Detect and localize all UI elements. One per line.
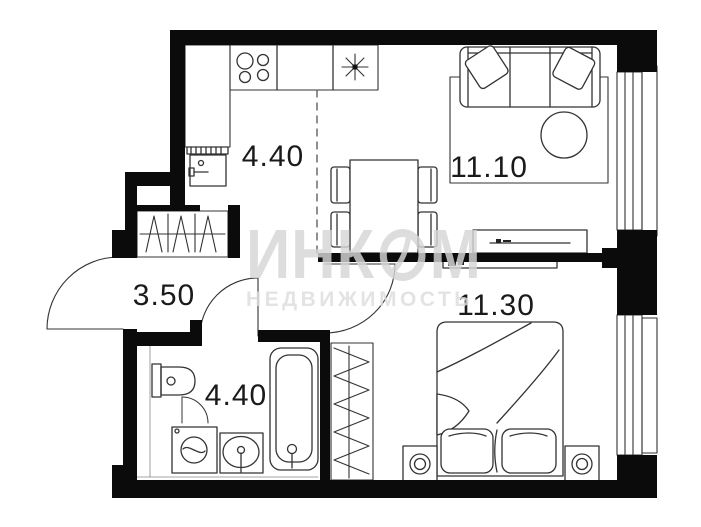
bedroom-door-arc	[325, 264, 395, 333]
bed	[437, 322, 563, 476]
wardrobe	[137, 211, 228, 257]
wall-window-mid	[617, 230, 657, 315]
wall-pier	[190, 320, 202, 334]
chair	[418, 212, 437, 247]
bathroom-area-label: 4.40	[205, 379, 267, 413]
wall-kitchen-left	[170, 30, 185, 207]
washing-machine	[172, 427, 217, 473]
closet	[331, 343, 373, 480]
kitchen-sink	[342, 54, 368, 80]
stove	[237, 53, 269, 83]
window-bedroom	[617, 315, 657, 455]
coffee-table	[541, 112, 587, 158]
sofa	[460, 44, 600, 107]
kitchen-area-label: 4.40	[242, 140, 304, 174]
chair	[331, 212, 350, 247]
bathroom-sink	[220, 433, 263, 473]
living-area-label: 11.10	[450, 151, 528, 185]
dining-table	[350, 160, 418, 253]
nightstand-right	[565, 446, 599, 481]
wall-divider	[318, 253, 617, 262]
chair	[331, 167, 350, 203]
chair	[418, 167, 437, 203]
wall-bath-top-right	[258, 330, 330, 342]
wall-wardrobe-right	[228, 205, 240, 258]
hallway-area-label: 3.50	[133, 279, 195, 313]
wall-divider-step	[602, 248, 617, 268]
floor-plan: 4.40 11.10 3.50 4.40 11.30 ИНК М НЕДВИЖИ…	[0, 0, 701, 527]
bedroom-area-label: 11.30	[457, 289, 535, 323]
dining-set	[331, 160, 437, 253]
wall-shelf-bar	[137, 205, 200, 211]
wall-window-top	[617, 30, 657, 72]
bathtub	[270, 348, 318, 470]
wall-left-lower	[123, 329, 137, 480]
wall-window-bottom	[617, 455, 657, 498]
wall-entry-stub	[112, 230, 137, 258]
wall-bottom	[112, 480, 657, 498]
toilet	[152, 364, 195, 397]
entrance-door-arc	[47, 257, 137, 329]
window-living	[617, 66, 657, 236]
wall-top	[170, 30, 657, 45]
wall-bath-closet	[320, 333, 330, 480]
bathroom-door-arc	[200, 278, 258, 336]
refrigerator	[187, 147, 228, 186]
plan-canvas	[0, 0, 701, 527]
nightstand-left	[403, 446, 437, 481]
tv-stand	[473, 230, 587, 253]
